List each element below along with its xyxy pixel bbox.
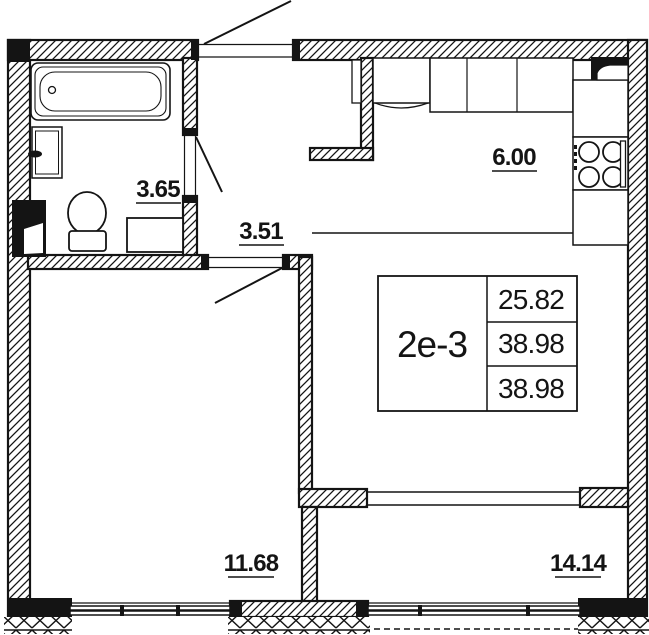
- window-jamb-bedroom: [230, 601, 242, 617]
- exterior-wall-left: [8, 40, 30, 617]
- insulation-strip-right: [578, 617, 649, 634]
- stove-knob: [574, 152, 577, 156]
- kitchen-vent-duct: [591, 57, 628, 80]
- living-partition-left-stub: [299, 489, 367, 507]
- stove-knob: [574, 145, 577, 149]
- bathroom-area-label: 3.65: [136, 176, 180, 203]
- corner-block-bottom-left: [8, 598, 72, 617]
- window-mullion: [176, 605, 180, 616]
- bedroom-door-jamb-right: [283, 255, 290, 269]
- window-mullion: [526, 605, 530, 616]
- insulation: [4, 617, 649, 634]
- entrance-door: [197, 1, 293, 57]
- bathtub-drain: [49, 87, 56, 94]
- insulation-strip-middle: [228, 617, 370, 634]
- vent-duct-curve: [597, 65, 628, 80]
- kitchen-counter-top: [373, 58, 573, 112]
- kitchen-counter-right: [573, 80, 628, 245]
- kitchen-cabinet-upper: [573, 80, 628, 137]
- washing-machine: [127, 218, 183, 252]
- window-mullion: [120, 605, 124, 616]
- window-mullion: [418, 605, 422, 616]
- kitchen-cabinets-row: [430, 58, 573, 112]
- oven-handle: [621, 141, 626, 187]
- bathroom-door-jamb-bottom: [183, 196, 197, 203]
- unit-type-label: 2е-3: [397, 324, 467, 365]
- corner-block-bottom-right: [578, 598, 647, 617]
- info-value-1: 25.82: [498, 284, 564, 315]
- insulation-strip-left: [4, 617, 72, 634]
- floor-plan: 2е-3 25.82 38.98 38.98 3.65 3.51 6.00 11…: [0, 0, 649, 635]
- stove-burner: [579, 167, 599, 187]
- living-partition-opening: [367, 492, 580, 505]
- living-partition-right-stub: [580, 488, 628, 507]
- bathroom-bottom-wall: [28, 255, 208, 269]
- stove-knob: [574, 159, 577, 163]
- bedroom-window: [70, 603, 230, 616]
- kitchen-area-label: 6.00: [492, 144, 536, 171]
- bedroom-door-leaf: [215, 268, 282, 303]
- info-value-3: 38.98: [498, 373, 564, 404]
- bathroom-wall-lower: [183, 196, 197, 257]
- stove-knob: [574, 166, 577, 170]
- niche-bottom-wall: [310, 148, 373, 160]
- toilet: [68, 192, 106, 251]
- bathroom-wall-upper: [183, 58, 197, 135]
- niche-cabinet: [352, 60, 361, 103]
- bedroom-door: [208, 258, 283, 304]
- bathroom-door: [185, 135, 223, 196]
- niche-right-wall: [361, 58, 373, 160]
- exterior-wall-bottom-middle: [230, 601, 368, 617]
- bedroom-area-label: 11.68: [224, 550, 279, 577]
- hallway-area-label: 3.51: [239, 218, 283, 245]
- kitchen-cabinet-lower: [573, 190, 628, 245]
- sink-tap: [28, 151, 42, 158]
- info-value-2: 38.98: [498, 328, 564, 359]
- bedroom-living-wall: [302, 507, 317, 605]
- stove-burner: [579, 142, 599, 162]
- entrance-jamb-left: [191, 40, 198, 60]
- entrance-door-leaf: [204, 1, 291, 44]
- bathroom-door-leaf: [196, 137, 222, 192]
- corner-block-top-left: [8, 40, 30, 62]
- bathroom-door-jamb-top: [183, 128, 197, 135]
- exterior-wall-right: [628, 40, 647, 617]
- bedroom-hall-wall: [299, 257, 312, 493]
- sink: [28, 127, 62, 178]
- living-window: [368, 603, 580, 629]
- kitchen-sink-counter: [373, 58, 430, 103]
- window-jamb-living: [356, 601, 368, 617]
- exterior-wall-top-left: [8, 40, 198, 60]
- vent-shaft: [12, 200, 46, 257]
- bedroom-door-jamb-left: [201, 255, 208, 269]
- entrance-jamb-right: [293, 40, 300, 60]
- info-table: 2е-3 25.82 38.98 38.98: [378, 276, 577, 411]
- living-room-area-label: 14.14: [550, 550, 608, 577]
- bathtub: [31, 63, 170, 120]
